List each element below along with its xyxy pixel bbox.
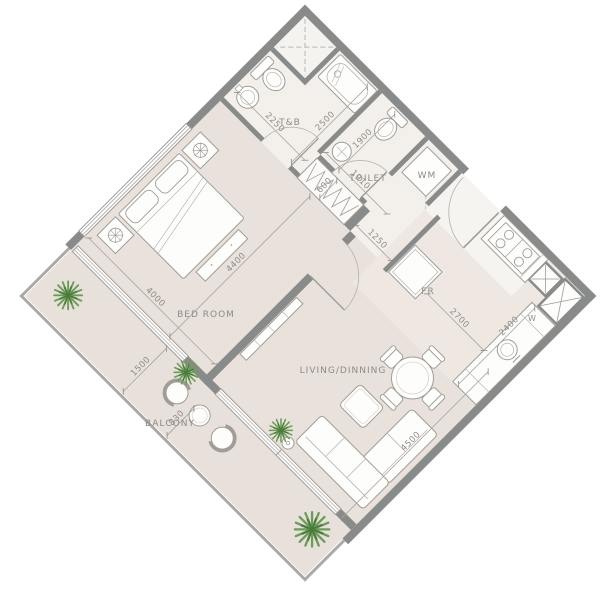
label-window-mark: W: [528, 314, 536, 323]
floor-plan-svg: 2250 2500 1900 1910 600 1250 4400 4000 1…: [0, 0, 606, 600]
label-bedroom: BED ROOM: [177, 310, 235, 320]
label-washing-machine: WM: [418, 171, 437, 181]
label-fridge: FR: [421, 287, 434, 297]
label-toilet: TOILET: [348, 174, 386, 184]
label-balcony: BALCONY: [145, 419, 195, 429]
floor-plan-page: 2250 2500 1900 1910 600 1250 4400 4000 1…: [0, 0, 606, 600]
label-living-dining: LIVING/DINNING: [300, 366, 387, 376]
label-tnb: T&B: [278, 118, 301, 128]
rotated-plan: 2250 2500 1900 1910 600 1250 4400 4000 1…: [17, 5, 597, 585]
